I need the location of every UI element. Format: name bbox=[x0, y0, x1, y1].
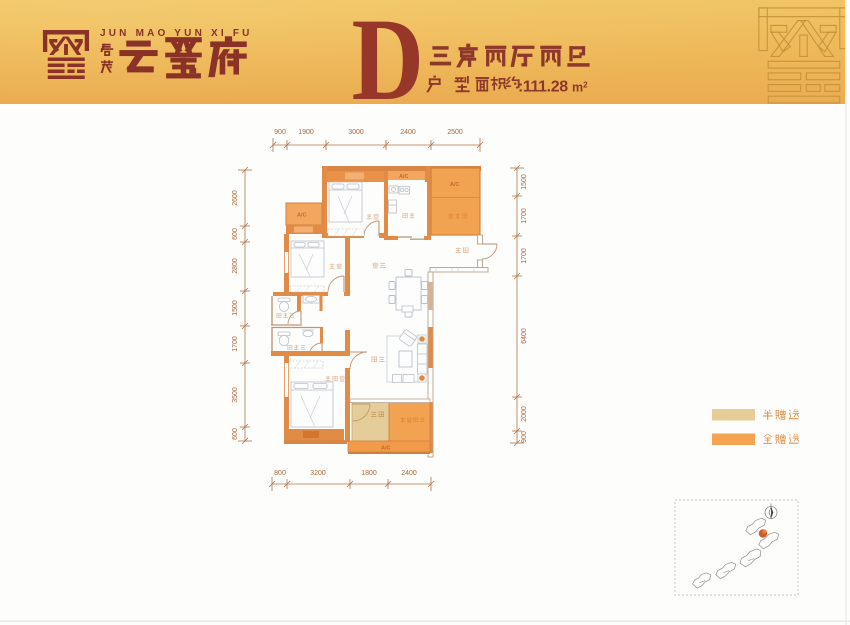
svg-text:A/C: A/C bbox=[381, 446, 391, 452]
svg-text:800: 800 bbox=[274, 470, 286, 477]
svg-text:600: 600 bbox=[232, 228, 239, 240]
svg-text:D: D bbox=[352, 0, 424, 125]
svg-text:6400: 6400 bbox=[521, 328, 528, 344]
svg-text:2400: 2400 bbox=[400, 129, 416, 136]
svg-text:A/C: A/C bbox=[450, 182, 460, 188]
svg-text:3200: 3200 bbox=[310, 470, 326, 477]
svg-text:2500: 2500 bbox=[447, 129, 463, 136]
svg-text:1700: 1700 bbox=[521, 208, 528, 224]
svg-text:900: 900 bbox=[521, 431, 528, 443]
svg-text:600: 600 bbox=[232, 428, 239, 440]
svg-text:900: 900 bbox=[274, 129, 286, 136]
svg-text:2600: 2600 bbox=[232, 190, 239, 206]
svg-text:1900: 1900 bbox=[298, 129, 314, 136]
svg-text:2800: 2800 bbox=[232, 258, 239, 274]
svg-text:1700: 1700 bbox=[232, 336, 239, 352]
svg-text:3000: 3000 bbox=[348, 129, 364, 136]
svg-text:2000: 2000 bbox=[521, 406, 528, 422]
svg-text:A/C: A/C bbox=[297, 213, 307, 219]
svg-text:2400: 2400 bbox=[401, 470, 417, 477]
svg-text:1800: 1800 bbox=[361, 470, 377, 477]
svg-text:1500: 1500 bbox=[232, 300, 239, 316]
svg-text:1500: 1500 bbox=[521, 174, 528, 190]
svg-text:1700: 1700 bbox=[521, 248, 528, 264]
svg-text:3500: 3500 bbox=[232, 387, 239, 403]
svg-text:A/C: A/C bbox=[399, 174, 409, 180]
svg-text::111.28: :111.28 bbox=[518, 79, 568, 96]
